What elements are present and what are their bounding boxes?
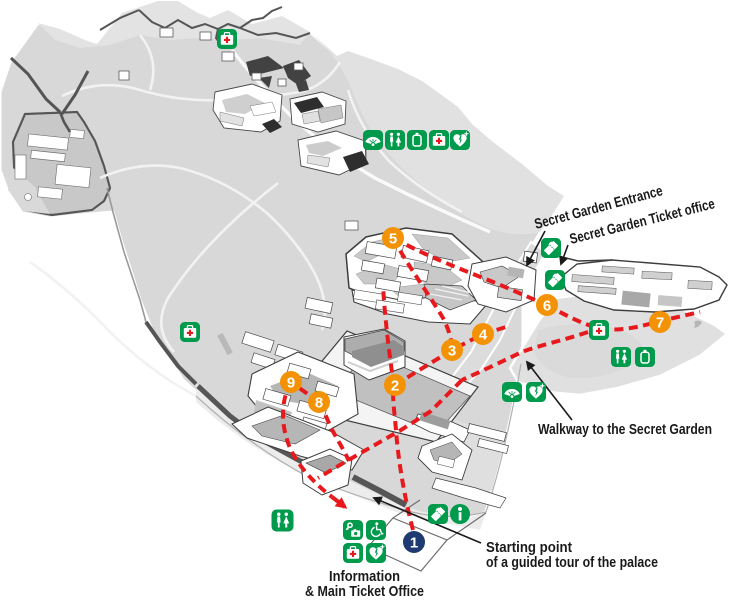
svg-text:9: 9 <box>287 375 295 392</box>
svg-text:8: 8 <box>315 395 323 412</box>
svg-text:4: 4 <box>479 327 488 344</box>
svg-text:& Main Ticket Office: & Main Ticket Office <box>305 583 424 599</box>
svg-text:6: 6 <box>543 298 551 315</box>
svg-text:1: 1 <box>410 535 418 552</box>
svg-text:5: 5 <box>389 231 397 248</box>
svg-text:of a guided tour of the palace: of a guided tour of the palace <box>486 554 658 571</box>
svg-text:3: 3 <box>448 343 456 360</box>
svg-text:Walkway to the Secret Garden: Walkway to the Secret Garden <box>538 421 712 438</box>
svg-text:7: 7 <box>656 315 664 332</box>
svg-text:2: 2 <box>391 378 399 395</box>
